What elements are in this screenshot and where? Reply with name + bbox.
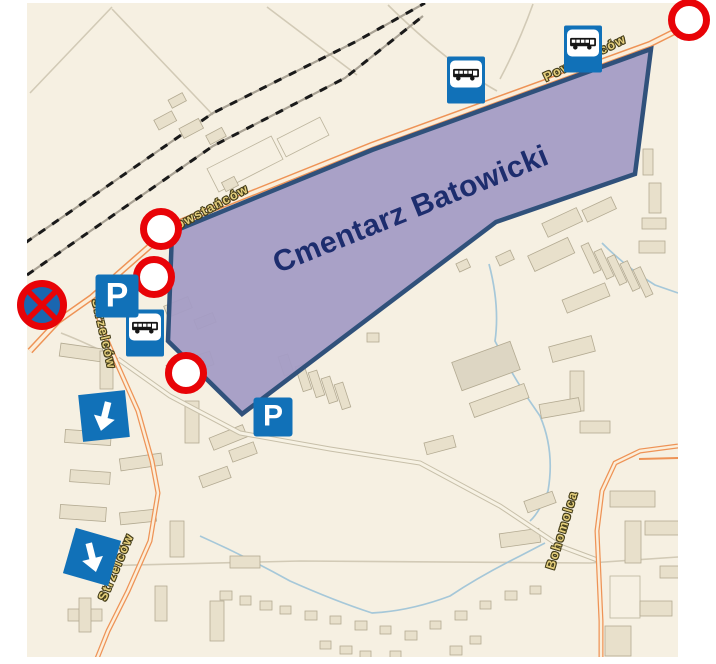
map-graphics (27, 3, 678, 657)
map-canvas[interactable] (27, 3, 678, 657)
cemetery-area (168, 49, 651, 414)
